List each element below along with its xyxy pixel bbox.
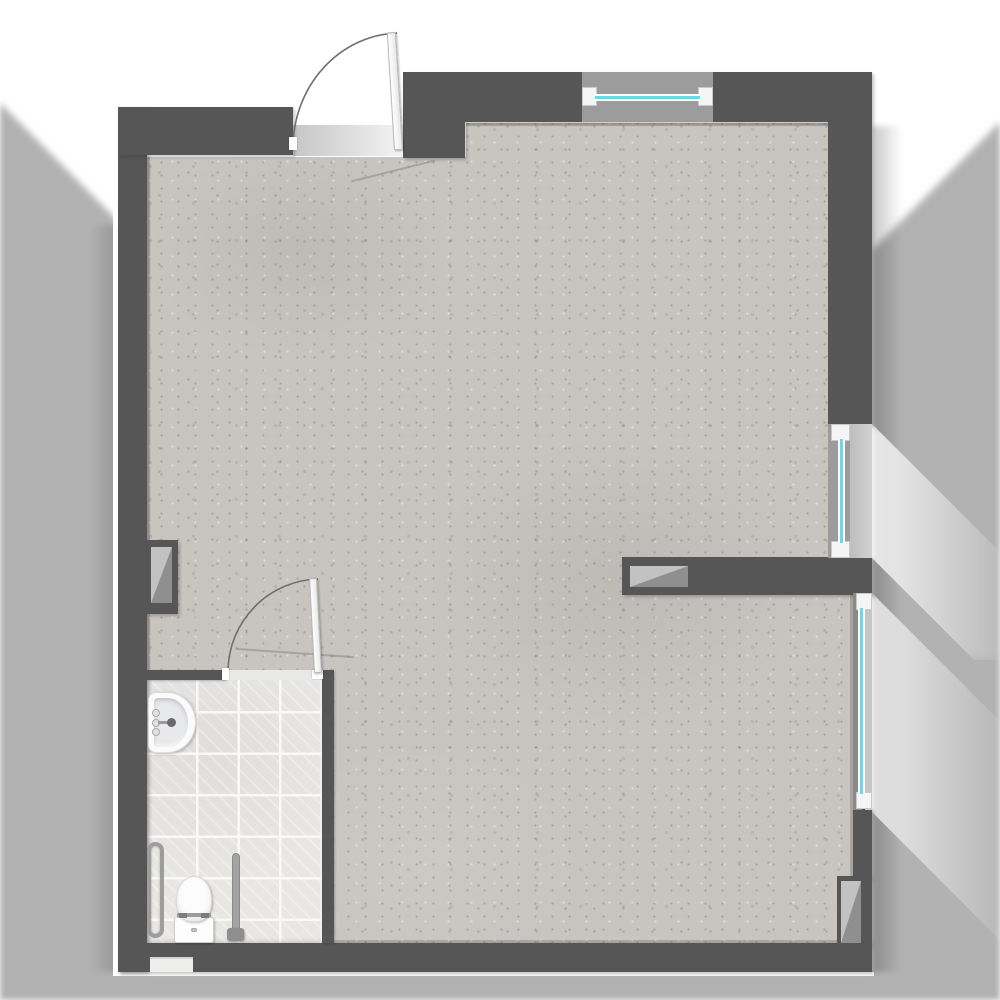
wall-left <box>118 107 147 972</box>
entrance-door-jamb <box>289 137 297 150</box>
outer-trim-bottom <box>113 972 874 976</box>
right-upper-window-opening <box>850 424 872 558</box>
left-wall-shaft <box>151 547 172 603</box>
wall-step-block <box>403 122 465 158</box>
right-upper-window-glass <box>838 439 845 543</box>
wall-bathroom-top <box>147 670 225 680</box>
bathroom-door-jamb <box>222 668 229 680</box>
top-window-glass <box>595 94 700 101</box>
shadow-bottom <box>118 972 872 1000</box>
support-pole <box>232 853 240 933</box>
support-pole-base <box>227 928 244 941</box>
toilet-flush-button <box>191 928 197 932</box>
washbasin-drain <box>167 718 176 727</box>
wall-vent <box>150 957 193 972</box>
faucet-handle <box>152 709 160 717</box>
wall-top-left <box>118 107 293 155</box>
wall-bathroom-right <box>322 670 334 943</box>
right-lower-window-glass <box>858 608 865 794</box>
entrance-threshold <box>293 125 403 156</box>
right-lower-window-opening <box>865 593 872 810</box>
top-window-frame-right <box>698 87 713 106</box>
toilet-seat-hinge <box>201 913 209 918</box>
toilet-seat-hinge <box>179 913 187 918</box>
right-lower-window-frame-bottom <box>856 792 872 809</box>
wall-right-upper <box>828 122 872 424</box>
wall-bottom <box>118 943 872 972</box>
floor-plan-canvas <box>0 0 1000 1000</box>
entrance-opening <box>293 107 403 125</box>
grab-bar <box>147 842 164 938</box>
right-wall-shaft <box>841 881 861 943</box>
wall-right-lower <box>853 808 872 878</box>
bathroom-threshold <box>225 670 322 680</box>
shadow-wedge-left <box>0 103 122 225</box>
right-upper-window-frame-bottom <box>831 541 850 558</box>
faucet-handle <box>152 728 160 736</box>
divider-wall-shaft <box>630 566 688 587</box>
